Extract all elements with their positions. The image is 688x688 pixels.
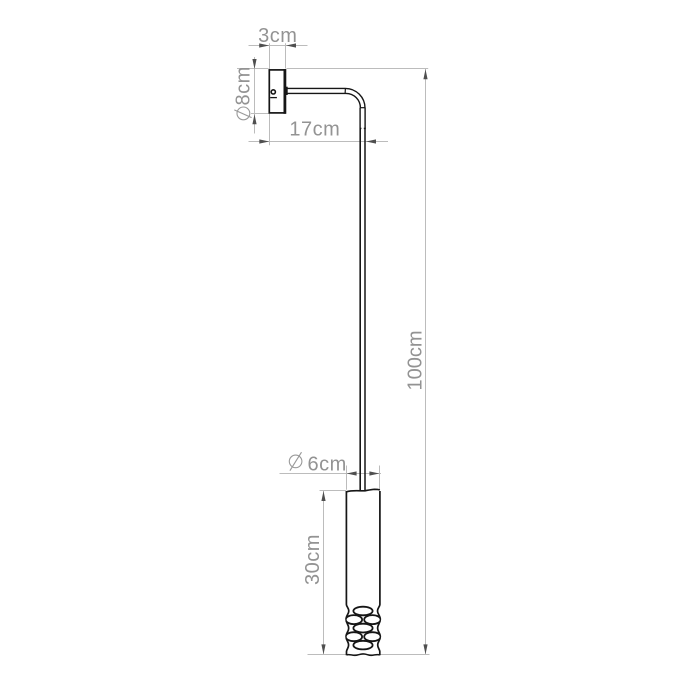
svg-text:100cm: 100cm	[405, 330, 427, 390]
svg-text:17cm: 17cm	[289, 118, 340, 140]
svg-text:3cm: 3cm	[258, 25, 297, 47]
svg-text:30cm: 30cm	[302, 534, 324, 585]
svg-text:6cm: 6cm	[308, 453, 347, 475]
svg-text:8cm: 8cm	[232, 66, 254, 105]
